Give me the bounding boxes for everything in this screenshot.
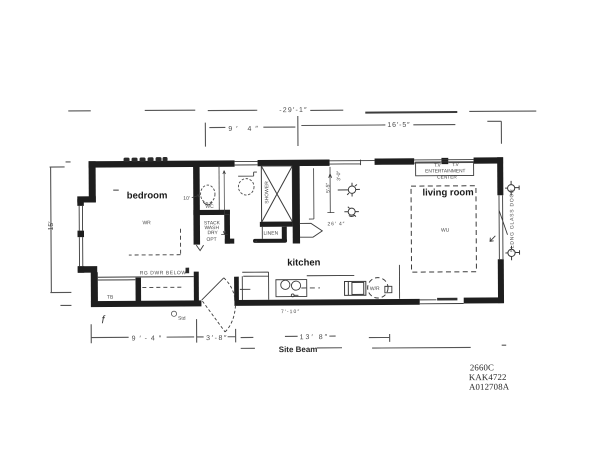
svg-text:2660C: 2660C: [470, 362, 494, 372]
svg-text:13′ 8″: 13′ 8″: [300, 334, 329, 341]
svg-text:SHOWER: SHOWER: [264, 181, 270, 204]
svg-text:10′: 10′: [183, 196, 190, 202]
svg-text:WR: WR: [142, 220, 151, 226]
svg-text:26′ 4″: 26′ 4″: [327, 221, 345, 227]
svg-text:7′-10″: 7′-10″: [281, 309, 300, 315]
svg-text:-29′-1″: -29′-1″: [279, 107, 308, 114]
svg-text:5′-5″: 5′-5″: [325, 183, 331, 193]
svg-text:SLDNG GLASS DOOR: SLDNG GLASS DOOR: [509, 188, 515, 252]
svg-text:DRY: DRY: [207, 230, 218, 236]
svg-text:WU: WU: [441, 228, 450, 234]
svg-text:WC: WC: [205, 204, 214, 210]
svg-text:9′-4″: 9′-4″: [132, 335, 165, 342]
svg-text:A012708A: A012708A: [469, 382, 510, 392]
svg-text:3′-8″: 3′-8″: [206, 335, 228, 342]
svg-text:15′: 15′: [48, 221, 55, 231]
svg-text:LINEN: LINEN: [263, 231, 278, 237]
svg-text:T.V: T.V: [434, 163, 442, 168]
svg-text:9′ 4″: 9′ 4″: [228, 126, 262, 133]
svg-text:W/R: W/R: [370, 286, 380, 292]
svg-text:RG DWR BELOW: RG DWR BELOW: [140, 270, 187, 276]
svg-text:16′-5″: 16′-5″: [387, 122, 410, 129]
svg-text:OPT: OPT: [207, 237, 217, 243]
svg-text:ENTERTAINMENT: ENTERTAINMENT: [425, 168, 465, 174]
svg-text:3′-0″: 3′-0″: [336, 171, 342, 181]
svg-text:T.V: T.V: [452, 162, 460, 167]
svg-text:kitchen: kitchen: [287, 257, 321, 268]
svg-text:TB: TB: [107, 295, 114, 301]
svg-text:living room: living room: [422, 187, 473, 198]
svg-text:bedroom: bedroom: [127, 190, 168, 201]
svg-text:CENTER: CENTER: [437, 175, 457, 181]
svg-text:Std: Std: [178, 316, 186, 322]
svg-text:Site Beam: Site Beam: [279, 345, 318, 354]
